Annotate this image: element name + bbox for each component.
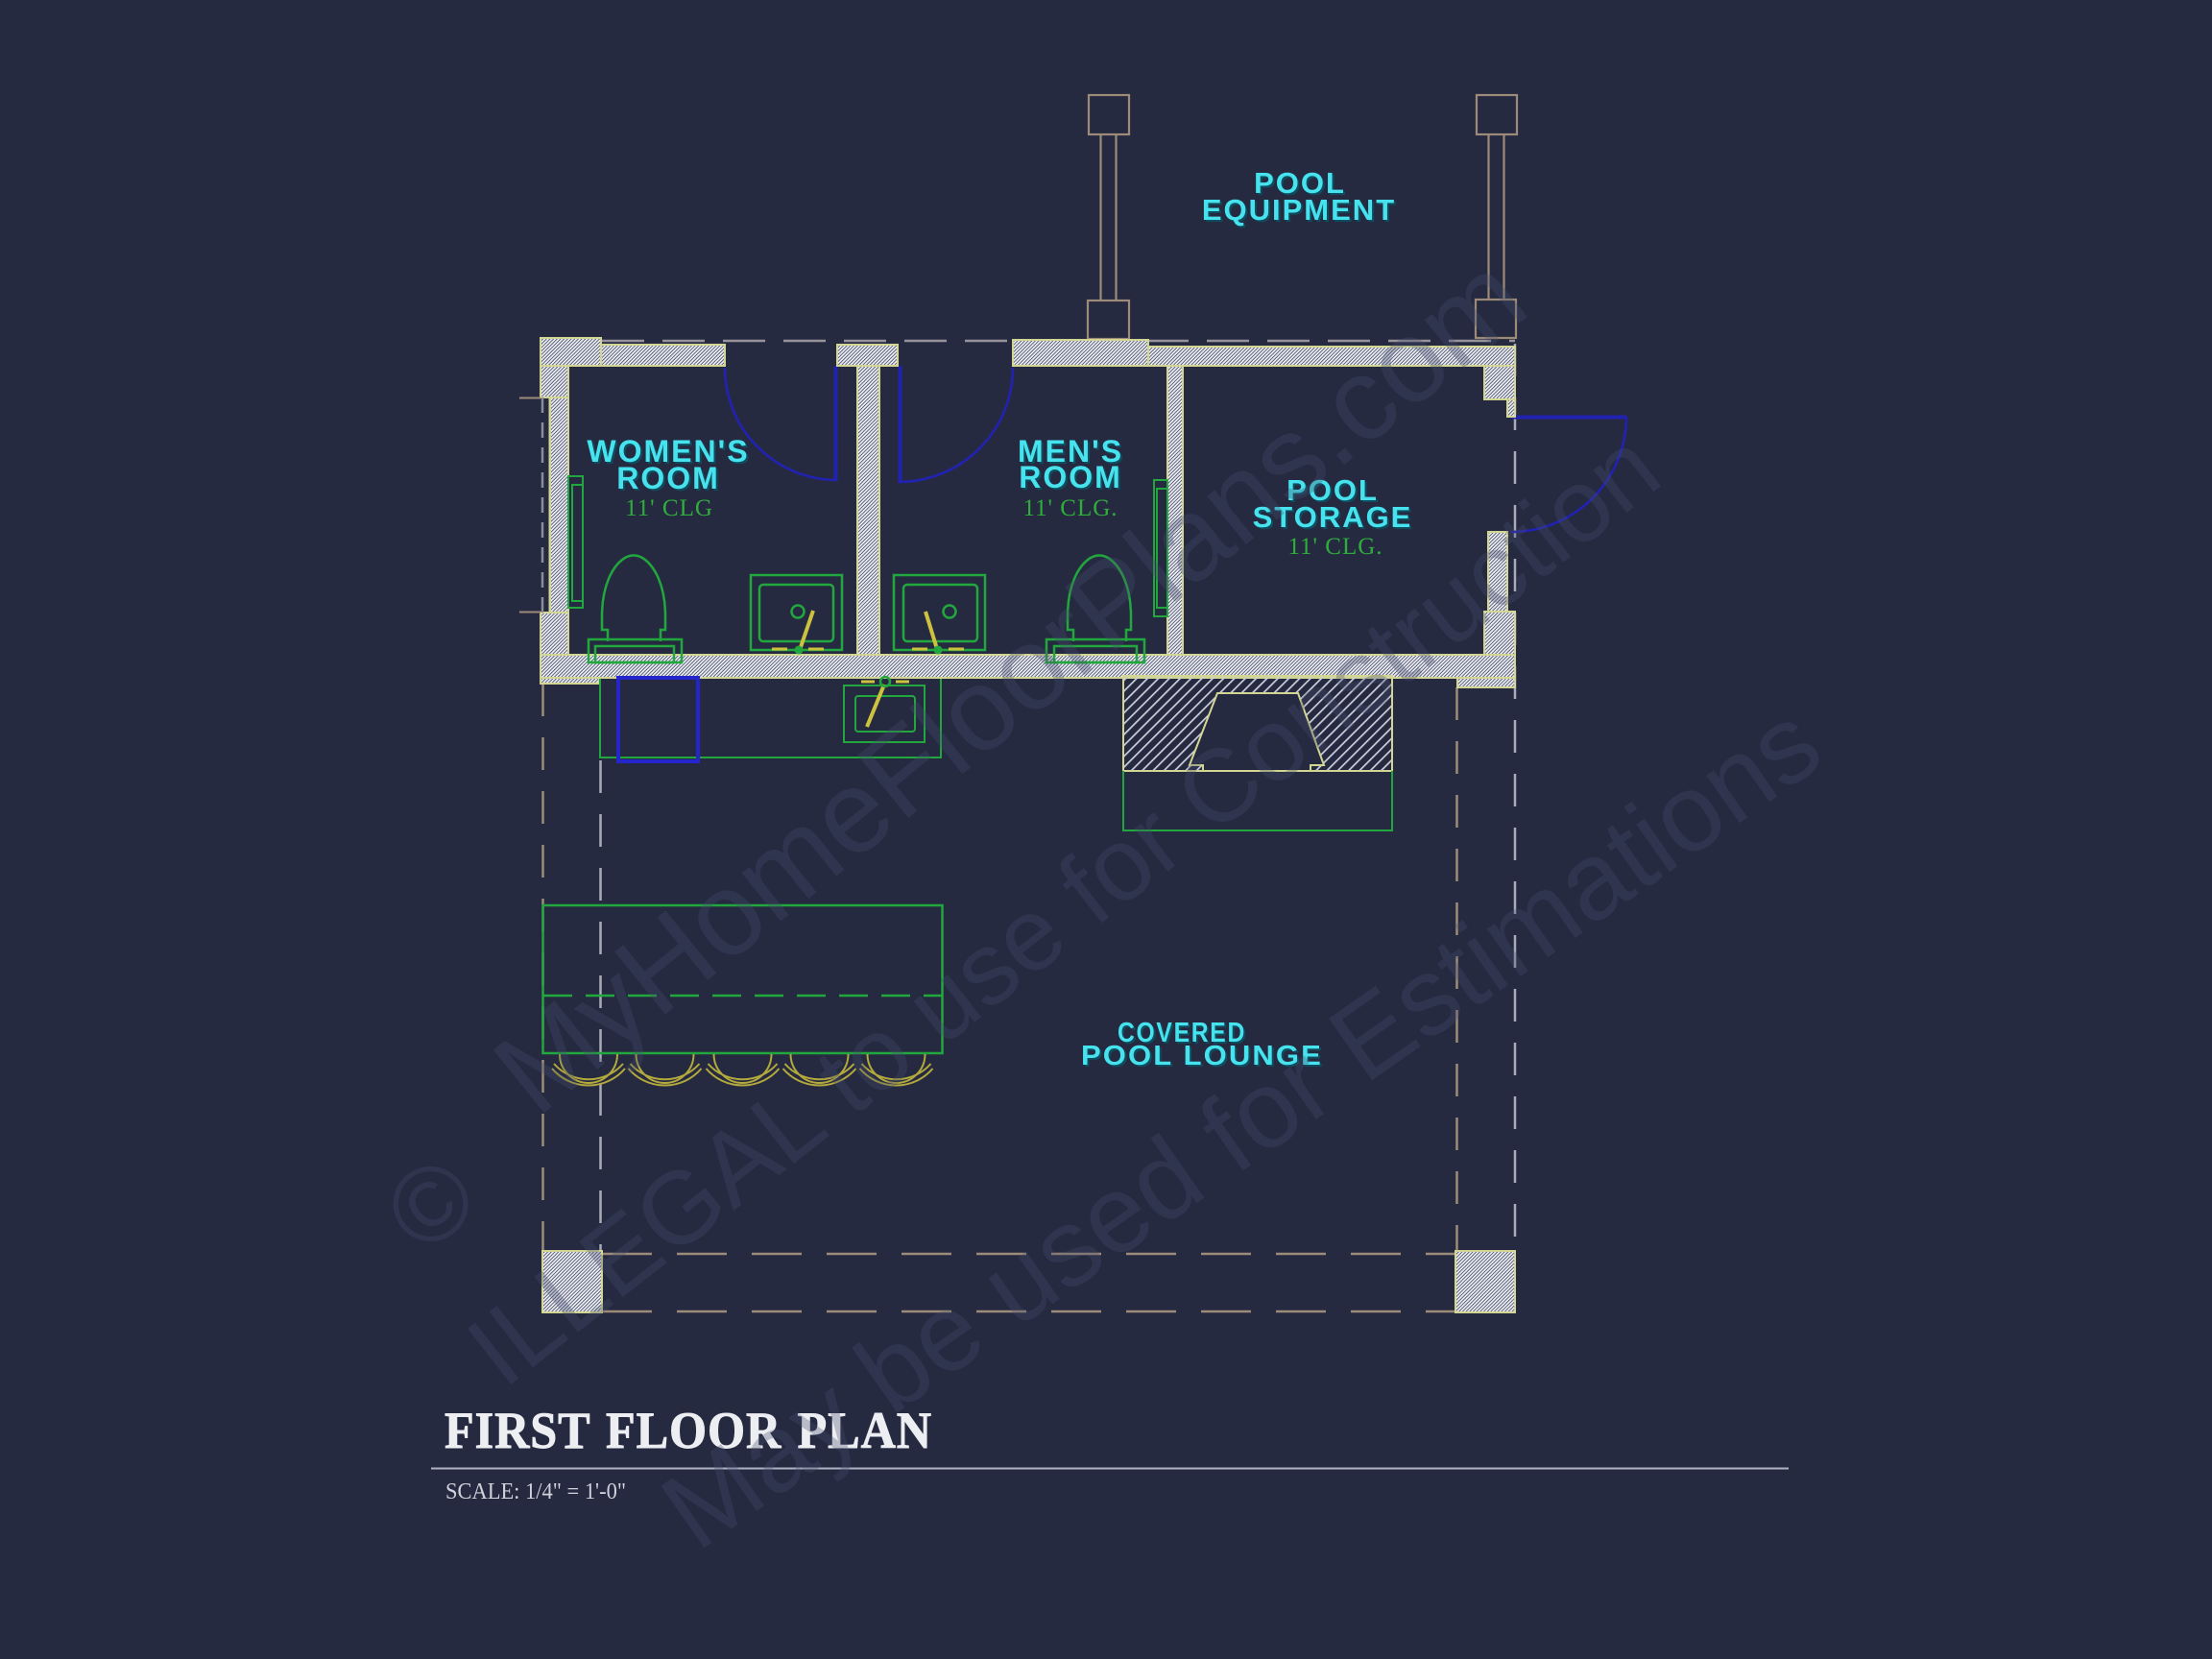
svg-text:EQUIPMENT: EQUIPMENT xyxy=(1202,193,1396,227)
svg-text:ROOM: ROOM xyxy=(1019,460,1122,494)
svg-text:11' CLG.: 11' CLG. xyxy=(1287,534,1382,560)
svg-text:ROOM: ROOM xyxy=(616,461,720,495)
svg-text:11' CLG.: 11' CLG. xyxy=(1022,495,1118,521)
svg-text:11' CLG: 11' CLG xyxy=(625,495,713,521)
svg-text:SCALE: 1/4" = 1'-0": SCALE: 1/4" = 1'-0" xyxy=(445,1479,626,1504)
